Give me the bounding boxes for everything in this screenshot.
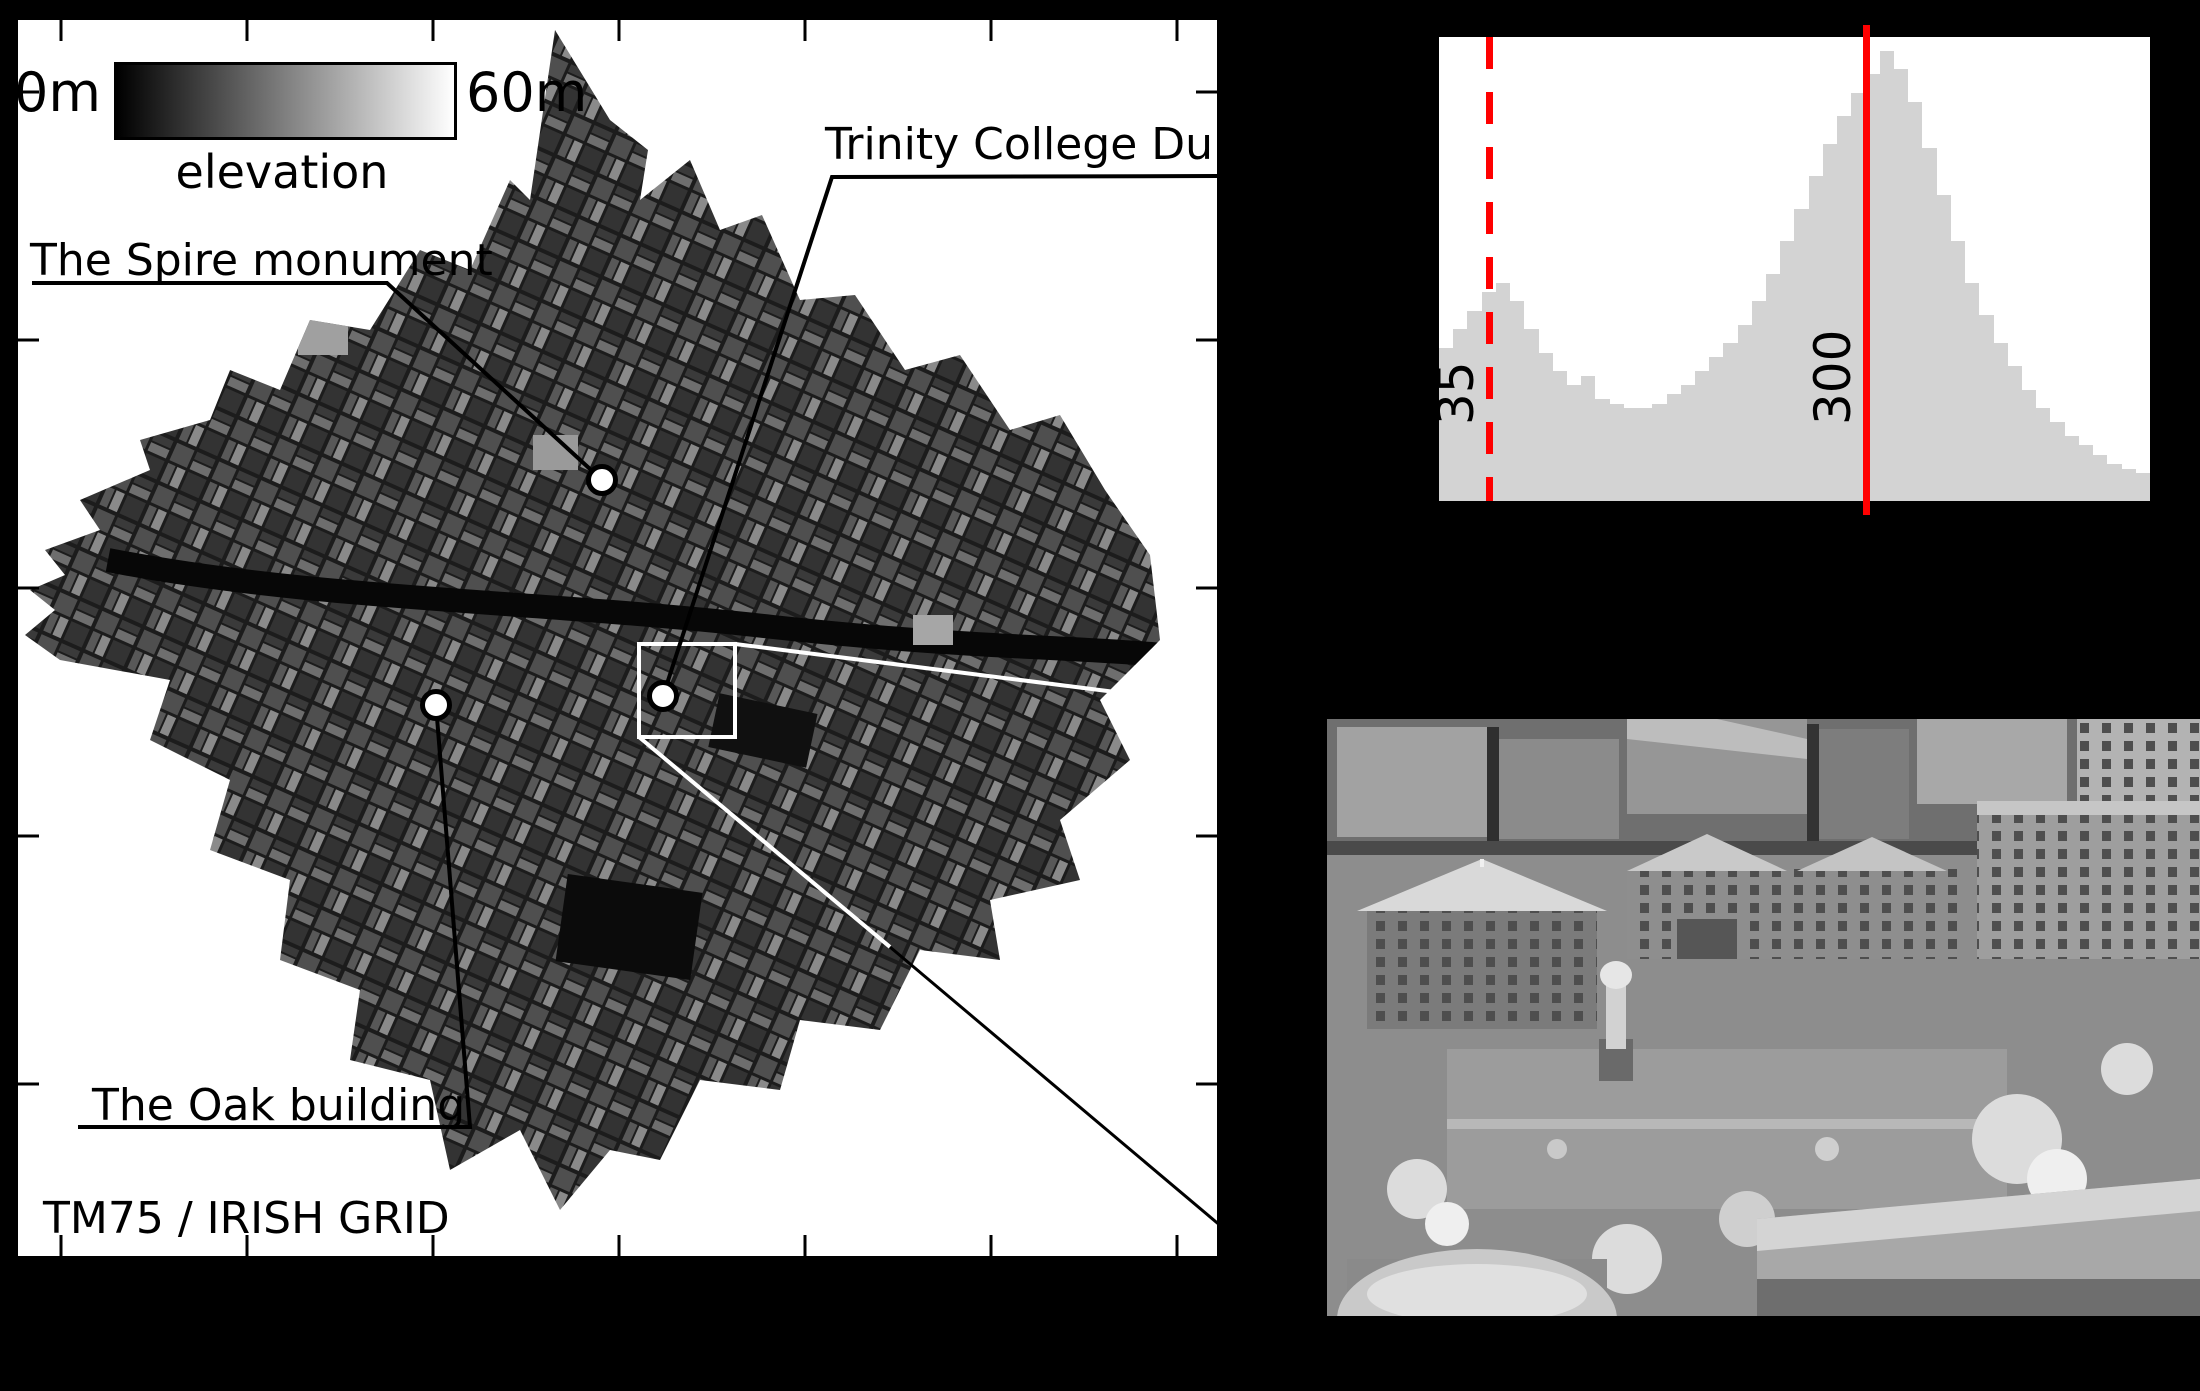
hist-bar	[1510, 301, 1524, 501]
light-block	[913, 615, 953, 645]
hist-bar	[1780, 241, 1794, 501]
hist-bar	[2136, 473, 2150, 501]
photo-graphic	[1327, 719, 2200, 1316]
hist-bar	[2079, 445, 2093, 501]
hist-bar	[1752, 301, 1766, 501]
colorbar-max-label: 60m	[466, 65, 587, 122]
hist-bar	[1624, 408, 1638, 501]
trinity-marker-dot	[650, 683, 677, 710]
hist-marker-label: 300	[1808, 275, 1860, 425]
hist-bar	[1965, 283, 1979, 501]
histogram-bars	[1439, 37, 2150, 501]
spire-marker-dot	[589, 467, 616, 494]
hist-bar	[1937, 195, 1951, 501]
figure-canvas: 0m 60m elevation The Spire monument Trin…	[0, 0, 2200, 1391]
hist-bar	[1595, 399, 1609, 501]
hist-bar	[1553, 371, 1567, 501]
colorbar-title: elevation	[132, 148, 432, 196]
hist-bar	[1994, 343, 2008, 501]
inset-connector-lower-black	[890, 947, 1222, 1227]
colorbar-min-label: 0m	[13, 65, 101, 122]
oak-annotation-label: The Oak building	[92, 1083, 465, 1129]
hist-bar	[1539, 353, 1553, 501]
hist-bar	[1581, 376, 1595, 501]
hist-bar	[1667, 394, 1681, 501]
hist-marker-line-solid	[1863, 25, 1870, 515]
hist-bar	[1951, 241, 1965, 501]
hist-bar	[2008, 366, 2022, 501]
hist-bar	[2093, 455, 2107, 501]
hist-marker-line-dashed	[1486, 37, 1493, 501]
park-dark-patch	[556, 874, 703, 980]
hist-bar	[1567, 385, 1581, 501]
hist-bar	[1652, 404, 1666, 501]
hist-bar	[1922, 148, 1936, 501]
point-density-histogram: 35300	[1439, 37, 2150, 501]
hist-bar	[1695, 371, 1709, 501]
hist-bar	[1880, 51, 1894, 501]
hist-bar	[1610, 404, 1624, 501]
light-block	[298, 315, 348, 355]
hist-bar	[2065, 436, 2079, 501]
hist-bar	[1723, 343, 1737, 501]
hist-marker-label: 35	[1431, 275, 1483, 425]
hist-bar	[1681, 385, 1695, 501]
hist-bar	[1524, 329, 1538, 501]
hist-bar	[2122, 469, 2136, 501]
hist-bar	[1709, 357, 1723, 501]
coordinate-system-label: TM75 / IRISH GRID	[43, 1196, 450, 1242]
map-graphic	[13, 15, 1222, 1261]
trinity-annotation-label: Trinity College Dublin	[825, 122, 1222, 168]
hist-bar	[1766, 274, 1780, 501]
elevation-colorbar	[114, 62, 457, 140]
spire-annotation-label: The Spire monument	[30, 238, 493, 284]
hist-bar	[2036, 408, 2050, 501]
hist-bar	[1638, 408, 1652, 501]
hist-bar	[1894, 69, 1908, 501]
trinity-college-aerial-photo	[1327, 719, 2200, 1316]
hist-bar	[1738, 325, 1752, 501]
hist-bar	[1979, 315, 1993, 501]
hist-bar	[2022, 390, 2036, 501]
oak-marker-dot	[423, 692, 450, 719]
dublin-elevation-map-panel: 0m 60m elevation The Spire monument Trin…	[13, 15, 1222, 1261]
hist-bar	[2050, 422, 2064, 501]
hist-bar	[1908, 102, 1922, 501]
hist-bar	[1496, 283, 1510, 501]
hist-bar	[2107, 464, 2121, 501]
